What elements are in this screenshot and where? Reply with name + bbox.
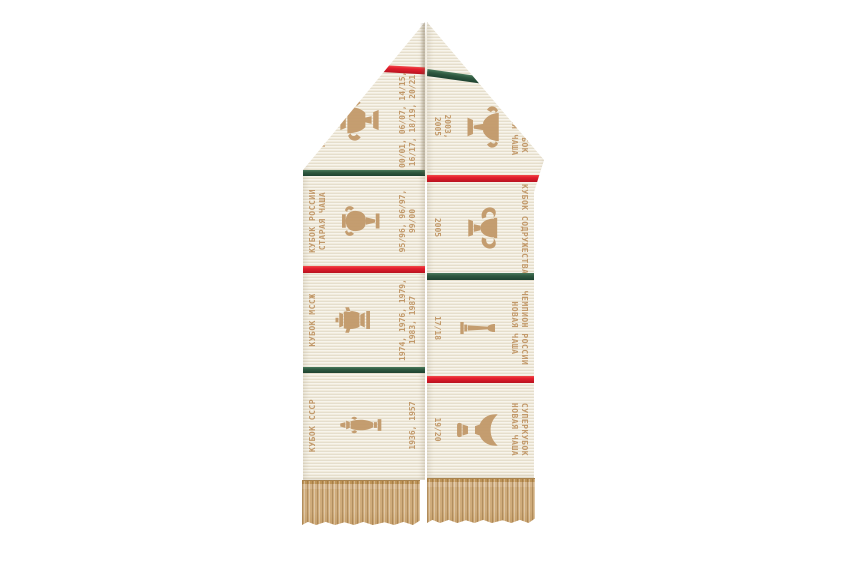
title-line: СТАРАЯ ЧАША xyxy=(318,178,328,264)
dates-line: 00/01, 06/07, 14/15, xyxy=(398,73,408,168)
russian-cup-old-trophy-icon xyxy=(339,197,387,245)
section-title: КУБОК РОССИИ СТАРАЯ ЧАША xyxy=(308,178,328,264)
supercup-old-trophy-icon xyxy=(456,101,506,153)
commonwealth-cup-trophy-icon xyxy=(456,200,506,256)
section-title: КУБОК СОДРУЖЕСТВА xyxy=(519,184,529,271)
dates-line: 1974, 1976, 1979, xyxy=(398,275,408,365)
supercup-new-trophy-icon xyxy=(451,405,501,455)
dates-line: 1936, 1957 xyxy=(408,375,418,476)
title-line: СТАРАЯ ЧАША xyxy=(509,80,519,173)
title-line: НОВАЯ ЧАША xyxy=(509,385,519,474)
title-line: КУБОК РОССИИ xyxy=(308,73,318,168)
msszh-cup-trophy-icon xyxy=(334,297,382,343)
section-dates: 2003, 2005 xyxy=(432,80,452,173)
title-line: КУБОК СССР xyxy=(308,375,318,476)
title-line: КУБОК МССЖ xyxy=(308,275,318,365)
section-russian-cup-new: КУБОК РОССИИ НОВАЯ ЧАША 00/01, 06/07, 14… xyxy=(303,71,425,170)
section-russian-champion: ЧЕМПИОН РОССИИ НОВАЯ ЧАША 17/18 xyxy=(427,280,547,376)
section-supercup-old: СУПЕРКУБОК СТАРАЯ ЧАША 2003, 2005 xyxy=(427,78,547,175)
section-title: СУПЕРКУБОК СТАРАЯ ЧАША xyxy=(509,80,529,173)
dates-line: 2003, xyxy=(442,80,452,173)
dates-line: 99/00 xyxy=(408,178,418,264)
title-line: ЧЕМПИОН РОССИИ xyxy=(519,282,529,374)
section-dates: 2005 xyxy=(432,184,442,271)
section-dates: 19/20 xyxy=(432,385,442,474)
title-line: СУПЕРКУБОК xyxy=(519,80,529,173)
right-divider-green-stripe xyxy=(427,273,547,280)
section-title: КУБОК МССЖ xyxy=(308,275,318,365)
section-dates: 95/96, 96/97, 99/00 xyxy=(398,178,418,264)
section-ussr-cup: КУБОК СССР 1936, 1957 xyxy=(303,373,425,478)
russian-champion-trophy-icon xyxy=(449,308,503,348)
dates-line: 1983, 1987 xyxy=(408,275,418,365)
ussr-cup-trophy-icon xyxy=(335,404,391,448)
dates-line: 95/96, 96/97, xyxy=(398,178,408,264)
scarf-right-panel: СУПЕРКУБОК СТАРАЯ ЧАША 2003, 2005 КУБОК … xyxy=(427,20,547,478)
scarf-left-panel: КУБОК РОССИИ НОВАЯ ЧАША 00/01, 06/07, 14… xyxy=(303,20,425,480)
section-dates: 1936, 1957 xyxy=(408,375,418,476)
dates-line: 19/20 xyxy=(432,385,442,474)
title-line: СУПЕРКУБОК xyxy=(519,385,529,474)
right-divider-red-stripe xyxy=(427,376,547,383)
dates-line: 2005 xyxy=(432,184,442,271)
fringe-right xyxy=(427,478,535,523)
fold-crease-shadow xyxy=(420,23,429,175)
section-dates: 17/18 xyxy=(432,282,442,374)
section-supercup-new: СУПЕРКУБОК НОВАЯ ЧАША 19/20 xyxy=(427,383,547,476)
title-line: КУБОК РОССИИ xyxy=(308,178,318,264)
dates-line: 17/18 xyxy=(432,282,442,374)
section-msszh-cup: КУБОК МССЖ 1974, 1976, 1979, 1983, 1987 xyxy=(303,273,425,367)
section-title: КУБОК РОССИИ НОВАЯ ЧАША xyxy=(308,73,328,168)
section-dates: 1974, 1976, 1979, 1983, 1987 xyxy=(398,275,418,365)
title-line: КУБОК СОДРУЖЕСТВА xyxy=(519,184,529,271)
section-dates: 00/01, 06/07, 14/15, 16/17, 18/19, 20/21 xyxy=(398,73,418,168)
right-divider-red-stripe xyxy=(427,175,547,182)
title-line: НОВАЯ ЧАША xyxy=(318,73,328,168)
section-title: СУПЕРКУБОК НОВАЯ ЧАША xyxy=(509,385,529,474)
left-divider-red-stripe xyxy=(303,266,425,273)
russian-cup-new-trophy-icon xyxy=(338,95,388,147)
fringe-left xyxy=(302,480,420,525)
section-title: КУБОК СССР xyxy=(308,375,318,476)
dates-line: 2005 xyxy=(432,80,442,173)
title-line: НОВАЯ ЧАША xyxy=(509,282,519,374)
section-commonwealth-cup: КУБОК СОДРУЖЕСТВА 2005 xyxy=(427,182,547,273)
section-title: ЧЕМПИОН РОССИИ НОВАЯ ЧАША xyxy=(509,282,529,374)
section-russian-cup-old: КУБОК РОССИИ СТАРАЯ ЧАША 95/96, 96/97, 9… xyxy=(303,176,425,266)
dates-line: 16/17, 18/19, 20/21 xyxy=(408,73,418,168)
product-photo: КУБОК РОССИИ НОВАЯ ЧАША 00/01, 06/07, 14… xyxy=(0,0,845,563)
